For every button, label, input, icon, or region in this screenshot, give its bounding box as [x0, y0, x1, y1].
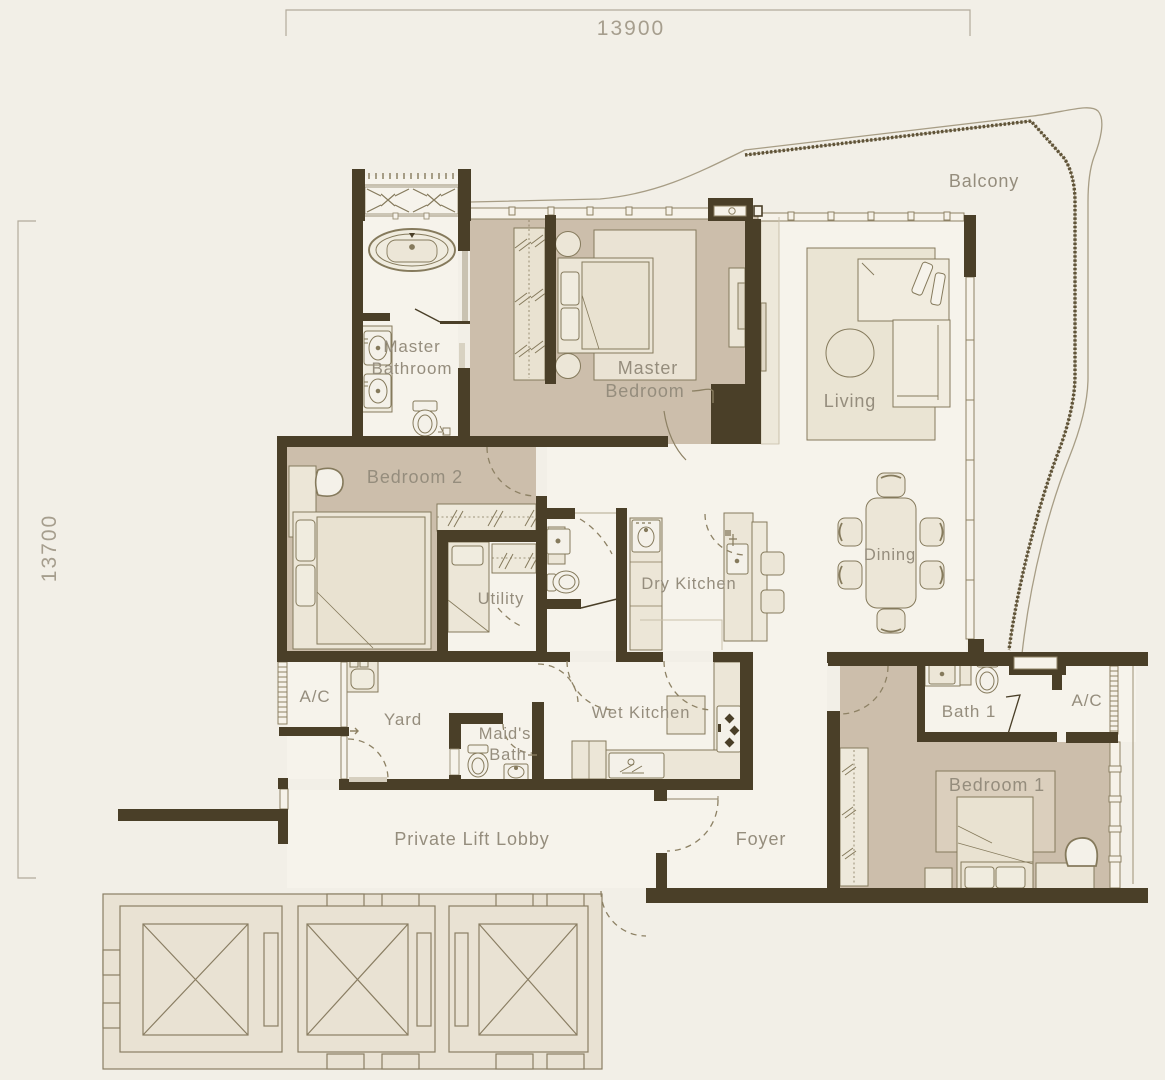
svg-text:Master: Master: [618, 358, 678, 378]
svg-text:Dining: Dining: [864, 546, 916, 564]
svg-text:Bath: Bath: [489, 746, 527, 764]
svg-text:A/C: A/C: [299, 687, 330, 706]
svg-text:Yard: Yard: [384, 710, 422, 729]
svg-text:Bedroom 1: Bedroom 1: [949, 775, 1045, 795]
svg-text:Bathroom: Bathroom: [372, 359, 453, 378]
svg-text:Maid's: Maid's: [479, 725, 532, 743]
svg-text:Private Lift Lobby: Private Lift Lobby: [394, 829, 549, 849]
svg-text:Utility: Utility: [478, 590, 525, 608]
svg-text:A/C: A/C: [1071, 691, 1102, 710]
svg-text:Master: Master: [383, 337, 440, 356]
svg-text:Wet Kitchen: Wet Kitchen: [592, 704, 691, 722]
svg-text:13700: 13700: [38, 514, 61, 582]
svg-text:Balcony: Balcony: [949, 171, 1019, 191]
svg-text:Bedroom: Bedroom: [605, 381, 684, 401]
svg-text:Bath 1: Bath 1: [942, 702, 997, 721]
svg-text:Living: Living: [824, 391, 876, 411]
svg-text:13900: 13900: [597, 17, 665, 40]
svg-text:Foyer: Foyer: [736, 829, 787, 849]
svg-text:Bedroom 2: Bedroom 2: [367, 467, 463, 487]
svg-text:Dry Kitchen: Dry Kitchen: [641, 575, 736, 593]
